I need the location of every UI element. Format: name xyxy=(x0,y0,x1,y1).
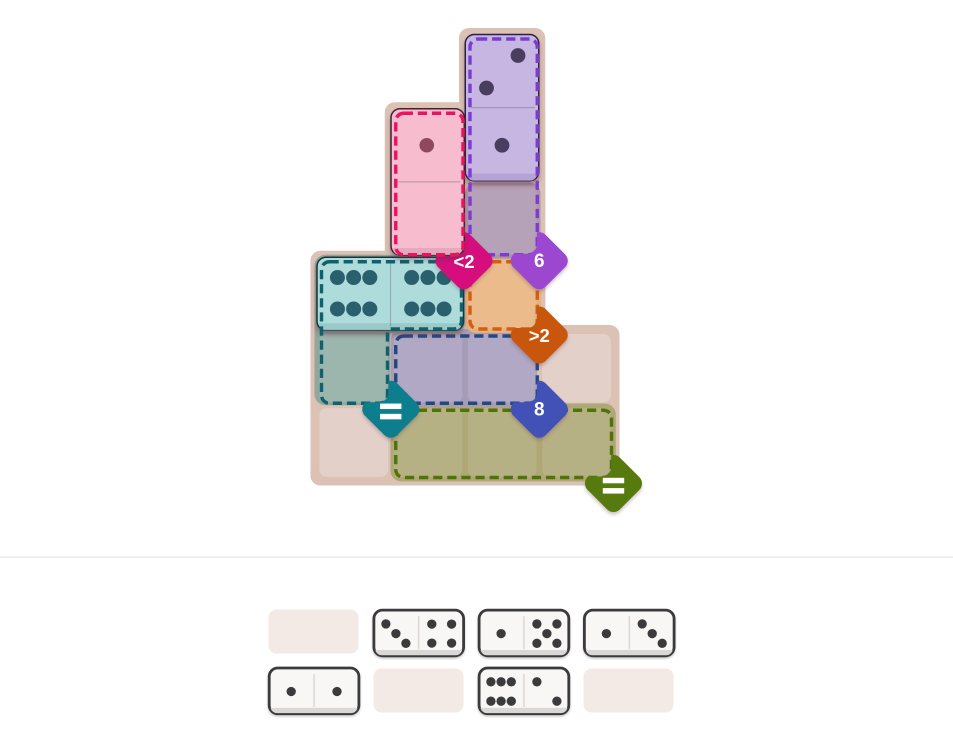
svg-text:<2: <2 xyxy=(453,251,474,272)
svg-text:6: 6 xyxy=(534,251,545,272)
svg-text:8: 8 xyxy=(534,399,545,420)
svg-text:>2: >2 xyxy=(529,325,550,346)
